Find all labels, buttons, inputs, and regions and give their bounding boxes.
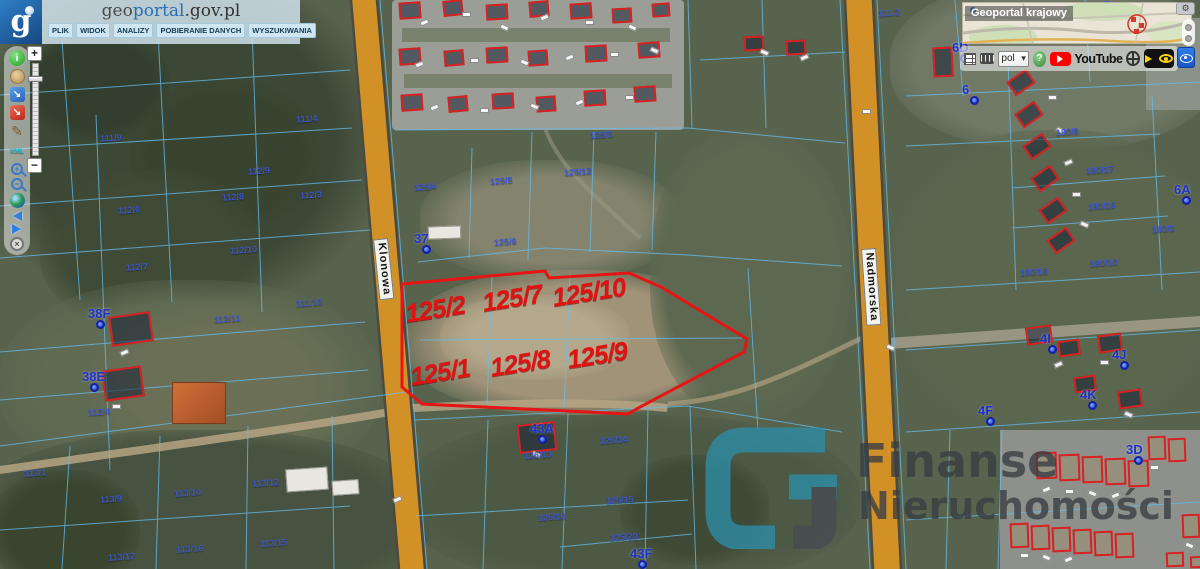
compass-wheel-icon[interactable] [1126,51,1139,66]
close-icon[interactable]: × [10,237,24,251]
minimap-title: Geoportal krajowy [965,6,1073,21]
visibility-eye-button[interactable] [1177,47,1195,68]
settings-gear-button[interactable]: ⚙ [1176,2,1195,15]
tool-dot-bottom[interactable] [1185,35,1192,42]
xml-icon[interactable]: XML [9,143,26,160]
language-value: pol [1001,53,1014,64]
youtube-label: YouTube [1074,52,1122,66]
menu-item-analizy[interactable]: ANALIZY [113,23,154,38]
menu-item-wyszukiwania[interactable]: WYSZUKIWANIA [248,23,316,38]
main-menu: PLIKWIDOKANALIZYPOBIERANIE DANYCHWYSZUKI… [48,23,300,38]
zoom-in-button[interactable]: + [27,46,42,61]
zoom-in-icon[interactable]: + [11,163,23,175]
eye-icon [1159,54,1173,63]
youtube-play-icon [1050,52,1071,66]
overview-minimap[interactable]: Geoportal krajowy [962,2,1192,44]
compass-icon[interactable] [10,69,25,84]
right-tools-pill [1182,19,1195,46]
zoom-control: + − [27,46,44,173]
geoportal-logo[interactable]: g [0,0,42,44]
zoom-out-button[interactable]: − [27,158,42,173]
map-overlay-graphics [0,0,1200,569]
globe-dot-icon [25,6,34,15]
pencil-icon[interactable]: ✎ [9,123,26,140]
next-view-icon[interactable] [12,224,26,234]
zoom-slider-track[interactable] [32,63,39,156]
select-area-red-icon[interactable]: ↘ [10,105,25,120]
help-button[interactable]: ? [1033,51,1046,67]
map-canvas[interactable]: 111/2180/2111/9111/4112/9112/8112/3112/6… [0,0,1200,569]
legend-icon[interactable] [964,53,976,65]
highlighted-parcel-outline [402,271,747,414]
menu-item-pobieranie-danych[interactable]: POBIERANIE DANYCH [156,23,245,38]
cursor-icon [1145,55,1156,63]
street-view-toggle[interactable] [1144,49,1174,68]
tool-dot-top[interactable] [1185,24,1192,31]
language-select[interactable]: pol [998,51,1028,67]
keyboard-icon[interactable] [980,53,994,64]
youtube-link[interactable]: YouTube [1050,52,1122,66]
globe-icon[interactable] [10,193,25,208]
select-area-blue-icon[interactable]: ↘ [10,87,25,102]
site-title: geoportal.gov.pl [42,1,300,21]
menu-item-widok[interactable]: WIDOK [76,23,110,38]
zoom-out-icon[interactable]: − [11,178,23,190]
zoom-slider-handle[interactable] [28,76,43,82]
top-control-bar: pol ? YouTube [960,46,1178,71]
info-icon[interactable]: i [9,50,25,66]
header-bar: geoportal.gov.pl PLIKWIDOKANALIZYPOBIERA… [42,0,300,44]
previous-view-icon[interactable] [8,211,22,221]
menu-item-plik[interactable]: PLIK [48,23,73,38]
chevron-down-icon [1021,53,1026,64]
